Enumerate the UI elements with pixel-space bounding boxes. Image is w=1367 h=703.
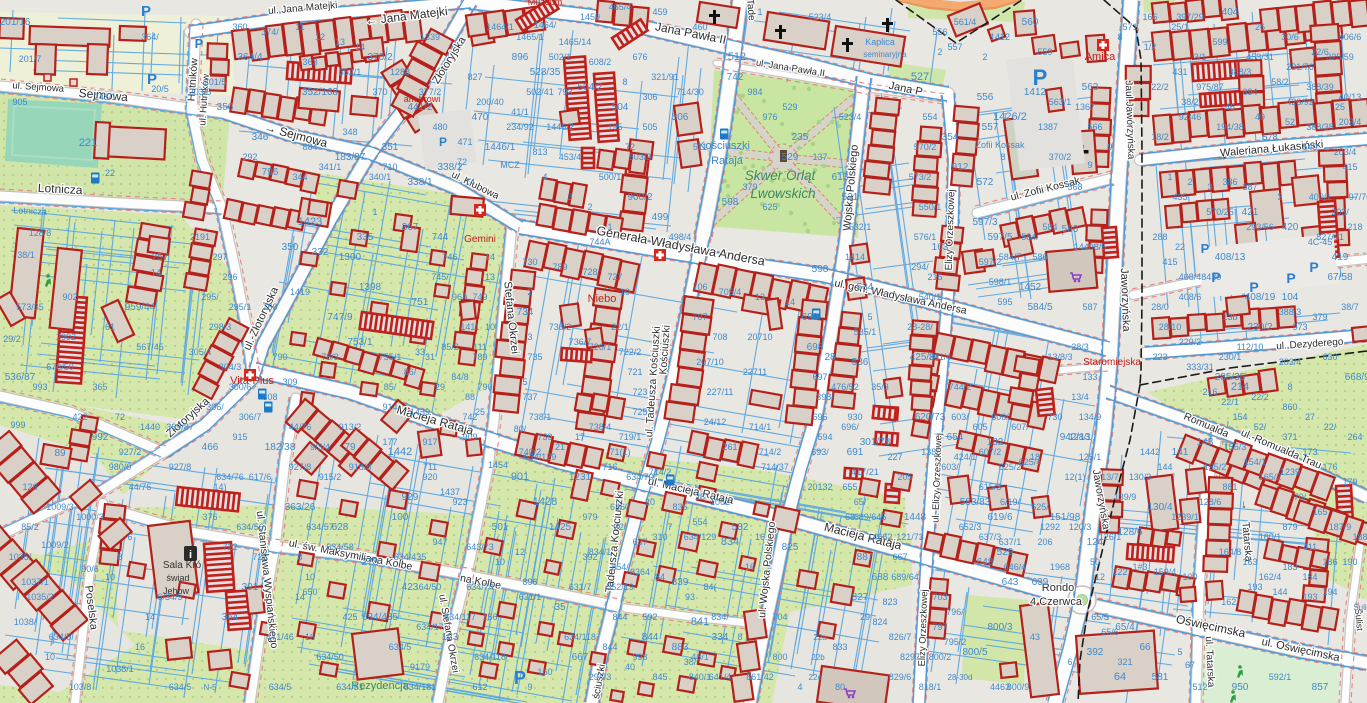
svg-text:248/1: 248/1 bbox=[94, 92, 117, 102]
svg-text:634/57: 634/57 bbox=[306, 522, 334, 532]
svg-text:431: 431 bbox=[1172, 67, 1187, 77]
svg-text:529: 529 bbox=[782, 102, 797, 112]
svg-text:207/10: 207/10 bbox=[696, 357, 724, 367]
svg-text:735: 735 bbox=[527, 352, 542, 362]
svg-text:201/7: 201/7 bbox=[19, 54, 42, 64]
svg-text:603/: 603/ bbox=[941, 462, 959, 472]
svg-text:4 Czerwca: 4 Czerwca bbox=[1030, 596, 1083, 608]
svg-text:556: 556 bbox=[932, 27, 947, 37]
svg-text:634/435: 634/435 bbox=[362, 612, 399, 623]
svg-text:112/10: 112/10 bbox=[1237, 342, 1264, 352]
svg-text:141: 141 bbox=[1172, 447, 1189, 458]
svg-text:823: 823 bbox=[882, 597, 897, 607]
svg-text:607/: 607/ bbox=[1011, 422, 1029, 432]
svg-text:915: 915 bbox=[232, 432, 247, 442]
svg-text:388/38: 388/38 bbox=[1306, 122, 1334, 132]
svg-text:122: 122 bbox=[1112, 567, 1127, 577]
svg-text:12: 12 bbox=[515, 547, 525, 557]
svg-text:1414: 1414 bbox=[845, 252, 865, 262]
svg-text:411: 411 bbox=[1303, 542, 1317, 552]
svg-text:151/98: 151/98 bbox=[1050, 512, 1081, 523]
svg-text:879: 879 bbox=[1282, 522, 1297, 532]
svg-text:P: P bbox=[195, 36, 204, 51]
svg-text:476/52: 476/52 bbox=[831, 382, 859, 392]
svg-text:844: 844 bbox=[612, 612, 627, 622]
svg-text:667: 667 bbox=[572, 652, 589, 663]
svg-text:634/56: 634/56 bbox=[236, 522, 264, 532]
svg-text:6360: 6360 bbox=[610, 502, 630, 512]
svg-text:523/4: 523/4 bbox=[839, 112, 862, 122]
svg-text:261: 261 bbox=[722, 442, 737, 452]
svg-text:221: 221 bbox=[79, 137, 97, 149]
svg-text:839: 839 bbox=[672, 577, 689, 588]
svg-text:630: 630 bbox=[1322, 352, 1337, 362]
svg-text:344: 344 bbox=[292, 172, 307, 182]
svg-text:179: 179 bbox=[1342, 477, 1357, 487]
svg-text:727: 727 bbox=[607, 272, 622, 282]
svg-text:P: P bbox=[514, 668, 526, 688]
svg-text:1448: 1448 bbox=[904, 512, 927, 523]
svg-text:896: 896 bbox=[522, 577, 537, 587]
svg-text:612: 612 bbox=[472, 682, 487, 692]
svg-text:90/6: 90/6 bbox=[81, 564, 99, 574]
svg-text:325/59: 325/59 bbox=[1326, 52, 1354, 62]
svg-text:857: 857 bbox=[1312, 682, 1329, 693]
svg-text:470: 470 bbox=[472, 112, 489, 123]
svg-text:13: 13 bbox=[335, 37, 345, 47]
svg-text:598: 598 bbox=[722, 197, 739, 208]
svg-text:364/: 364/ bbox=[141, 32, 159, 42]
svg-text:4: 4 bbox=[542, 172, 547, 182]
svg-text:419: 419 bbox=[1332, 252, 1349, 263]
svg-text:84(: 84( bbox=[703, 582, 716, 592]
svg-text:512: 512 bbox=[1192, 682, 1207, 692]
svg-text:800/5: 800/5 bbox=[962, 647, 987, 658]
svg-text:688: 688 bbox=[872, 572, 889, 583]
svg-text:294/: 294/ bbox=[911, 262, 929, 272]
svg-text:634/118: 634/118 bbox=[564, 632, 596, 642]
svg-text:529: 529 bbox=[782, 152, 799, 163]
svg-text:598/1: 598/1 bbox=[989, 277, 1012, 287]
svg-text:707: 707 bbox=[692, 312, 707, 322]
svg-text:918/8: 918/8 bbox=[349, 462, 372, 472]
svg-text:637/1: 637/1 bbox=[999, 537, 1022, 547]
svg-text:597/3: 597/3 bbox=[972, 217, 997, 228]
svg-text:14408/5: 14408/5 bbox=[1074, 242, 1107, 252]
svg-text:392: 392 bbox=[582, 552, 597, 562]
svg-text:597/5: 597/5 bbox=[987, 232, 1012, 243]
svg-text:942/13: 942/13 bbox=[1060, 432, 1091, 443]
svg-text:285/35: 285/35 bbox=[1215, 372, 1246, 383]
svg-text:471/46: 471/46 bbox=[266, 632, 294, 642]
svg-text:386: 386 bbox=[1222, 177, 1237, 187]
svg-text:459: 459 bbox=[652, 7, 667, 17]
svg-text:N-5: N-5 bbox=[204, 683, 217, 692]
svg-text:1464/1: 1464/1 bbox=[486, 22, 514, 32]
svg-text:404: 404 bbox=[1222, 7, 1239, 18]
svg-text:17: 17 bbox=[575, 432, 585, 442]
svg-text:826/7: 826/7 bbox=[889, 632, 912, 642]
svg-text:9: 9 bbox=[1107, 142, 1112, 152]
svg-text:571: 571 bbox=[1122, 22, 1137, 32]
svg-text:44/76: 44/76 bbox=[129, 482, 152, 492]
svg-text:650: 650 bbox=[302, 587, 317, 597]
svg-text:655: 655 bbox=[842, 482, 857, 492]
svg-text:834/: 834/ bbox=[711, 612, 729, 622]
svg-text:441/2: 441/2 bbox=[407, 102, 432, 113]
svg-text:61: 61 bbox=[105, 322, 115, 332]
svg-text:845: 845 bbox=[652, 672, 667, 682]
svg-text:927/8: 927/8 bbox=[289, 462, 312, 472]
svg-text:398/: 398/ bbox=[816, 392, 834, 402]
svg-text:844: 844 bbox=[602, 642, 617, 652]
svg-text:573/2: 573/2 bbox=[909, 172, 932, 182]
svg-text:1440: 1440 bbox=[140, 422, 160, 432]
svg-text:133: 133 bbox=[1082, 372, 1097, 382]
svg-text:8364: 8364 bbox=[630, 567, 650, 577]
svg-text:125/1: 125/1 bbox=[1079, 452, 1102, 462]
svg-text:364/4: 364/4 bbox=[237, 52, 262, 63]
svg-text:8: 8 bbox=[297, 552, 302, 562]
svg-text:999: 999 bbox=[10, 420, 25, 430]
svg-text:453/31: 453/31 bbox=[1246, 52, 1274, 62]
svg-text:711: 711 bbox=[423, 462, 437, 472]
svg-text:338/1: 338/1 bbox=[407, 177, 432, 188]
svg-text:64/50: 64/50 bbox=[419, 582, 442, 592]
svg-text:20: 20 bbox=[645, 497, 655, 507]
svg-text:351: 351 bbox=[382, 142, 399, 153]
svg-text:408/13: 408/13 bbox=[1215, 252, 1246, 263]
svg-text:14): 14) bbox=[213, 482, 226, 492]
svg-text:52/: 52/ bbox=[1254, 422, 1267, 432]
svg-text:502/1: 502/1 bbox=[549, 52, 572, 62]
svg-text:1442: 1442 bbox=[388, 446, 412, 458]
svg-text:697: 697 bbox=[812, 372, 827, 382]
svg-text:500/1: 500/1 bbox=[599, 172, 622, 182]
svg-text:426/92: 426/92 bbox=[1286, 97, 1314, 107]
svg-text:22a: 22a bbox=[813, 633, 827, 642]
svg-text:561/4: 561/4 bbox=[954, 17, 977, 27]
svg-text:584: 584 bbox=[1042, 222, 1057, 232]
svg-text:980/0: 980/0 bbox=[109, 462, 132, 472]
svg-text:536/87: 536/87 bbox=[5, 372, 36, 383]
svg-text:721: 721 bbox=[627, 367, 642, 377]
svg-text:503/3: 503/3 bbox=[629, 152, 652, 162]
svg-text:887: 887 bbox=[857, 552, 874, 563]
svg-text:92/46: 92/46 bbox=[1179, 112, 1202, 122]
svg-text:155/3: 155/3 bbox=[1224, 442, 1247, 452]
svg-text:1009/2: 1009/2 bbox=[41, 540, 69, 550]
svg-text:364: 364 bbox=[222, 612, 239, 623]
svg-text:668/99: 668/99 bbox=[1345, 372, 1367, 383]
svg-text:9179: 9179 bbox=[410, 662, 430, 672]
svg-text:608/2: 608/2 bbox=[589, 57, 612, 67]
svg-text:9: 9 bbox=[527, 682, 532, 692]
svg-text:693/: 693/ bbox=[811, 447, 829, 457]
svg-text:38/2: 38/2 bbox=[1181, 97, 1199, 107]
svg-text:797: 797 bbox=[932, 622, 947, 632]
svg-text:504: 504 bbox=[612, 102, 629, 113]
svg-text:130/4: 130/4 bbox=[1147, 502, 1172, 513]
svg-text:566: 566 bbox=[1087, 122, 1102, 132]
svg-text:417/21: 417/21 bbox=[851, 467, 879, 477]
svg-text:2: 2 bbox=[587, 202, 592, 212]
svg-text:360: 360 bbox=[232, 22, 247, 32]
svg-text:38/7: 38/7 bbox=[1341, 302, 1359, 312]
svg-text:5: 5 bbox=[1177, 647, 1182, 657]
svg-text:379: 379 bbox=[1312, 312, 1327, 322]
svg-text:72: 72 bbox=[457, 157, 467, 167]
svg-text:13: 13 bbox=[755, 292, 765, 302]
svg-text:154: 154 bbox=[1232, 412, 1247, 422]
svg-text:529: 529 bbox=[997, 547, 1014, 558]
svg-text:706: 706 bbox=[692, 282, 707, 292]
svg-text:466: 466 bbox=[202, 442, 219, 453]
svg-text:35: 35 bbox=[554, 602, 566, 613]
svg-text:300/6: 300/6 bbox=[229, 382, 252, 392]
svg-text:415: 415 bbox=[1342, 162, 1357, 172]
svg-text:21: 21 bbox=[555, 442, 565, 452]
svg-text:13/8/3: 13/8/3 bbox=[1047, 352, 1072, 362]
svg-text:13: 13 bbox=[485, 272, 495, 282]
svg-text:8: 8 bbox=[1287, 382, 1292, 392]
svg-text:173: 173 bbox=[1302, 447, 1317, 457]
svg-text:Sala Kró: Sala Kró bbox=[163, 560, 202, 571]
svg-text:1465/14: 1465/14 bbox=[559, 37, 592, 47]
svg-text:20132: 20132 bbox=[807, 482, 832, 492]
svg-text:947: 947 bbox=[432, 537, 447, 547]
svg-text:973: 973 bbox=[1292, 322, 1307, 332]
svg-text:5: 5 bbox=[867, 312, 872, 322]
svg-text:134/9: 134/9 bbox=[1079, 412, 1102, 422]
svg-text:691: 691 bbox=[847, 447, 864, 458]
svg-text:10: 10 bbox=[620, 287, 630, 297]
svg-text:203/4: 203/4 bbox=[1279, 357, 1302, 367]
svg-text:84/8: 84/8 bbox=[451, 372, 469, 382]
svg-text:162/: 162/ bbox=[1221, 597, 1239, 607]
svg-text:738/1: 738/1 bbox=[529, 412, 552, 422]
svg-text:44/76: 44/76 bbox=[289, 422, 312, 432]
svg-text:975/87: 975/87 bbox=[1196, 82, 1224, 92]
svg-text:Muzeum: Muzeum bbox=[528, 0, 563, 7]
svg-text:696/: 696/ bbox=[841, 422, 859, 432]
svg-text:74: 74 bbox=[465, 177, 475, 187]
svg-text:835: 835 bbox=[672, 502, 687, 512]
svg-text:800/3: 800/3 bbox=[987, 622, 1012, 633]
svg-text:203/5: 203/5 bbox=[189, 87, 212, 97]
svg-text:333/31: 333/31 bbox=[1186, 362, 1214, 372]
svg-text:528/35: 528/35 bbox=[530, 67, 561, 78]
svg-text:203/: 203/ bbox=[1331, 207, 1349, 217]
svg-text:264: 264 bbox=[1347, 432, 1362, 442]
svg-text:227: 227 bbox=[887, 452, 902, 462]
svg-text:499: 499 bbox=[652, 212, 669, 223]
svg-text:901: 901 bbox=[511, 471, 529, 483]
svg-text:698: 698 bbox=[807, 342, 824, 353]
svg-text:165: 165 bbox=[1312, 507, 1327, 517]
svg-text:1425: 1425 bbox=[549, 522, 572, 533]
svg-text:29/73: 29/73 bbox=[589, 672, 612, 682]
svg-text:25: 25 bbox=[475, 407, 485, 417]
svg-text:532: 532 bbox=[732, 522, 749, 533]
svg-text:634/181: 634/181 bbox=[404, 682, 437, 692]
svg-text:435: 435 bbox=[1172, 192, 1187, 202]
svg-text:Amica: Amica bbox=[1085, 51, 1116, 63]
svg-text:704: 704 bbox=[772, 612, 787, 622]
svg-text:72: 72 bbox=[625, 142, 635, 152]
svg-text:67: 67 bbox=[1185, 660, 1195, 670]
svg-text:8: 8 bbox=[1000, 152, 1005, 162]
svg-text:506: 506 bbox=[672, 112, 689, 123]
svg-text:138/: 138/ bbox=[921, 447, 939, 457]
svg-text:790: 790 bbox=[477, 382, 492, 392]
svg-text:3: 3 bbox=[1277, 192, 1282, 202]
svg-text:552/19: 552/19 bbox=[606, 582, 634, 592]
svg-text:22c: 22c bbox=[809, 673, 822, 682]
svg-text:334: 334 bbox=[712, 632, 729, 643]
svg-text:646/4: 646/4 bbox=[1004, 562, 1027, 572]
svg-text:1288: 1288 bbox=[390, 67, 410, 77]
svg-text:465/4: 465/4 bbox=[609, 2, 632, 12]
svg-text:16: 16 bbox=[755, 532, 765, 542]
svg-text:998: 998 bbox=[632, 652, 647, 662]
svg-text:1446/1: 1446/1 bbox=[485, 142, 516, 153]
svg-text:16: 16 bbox=[305, 632, 315, 642]
svg-text:200/40: 200/40 bbox=[476, 97, 504, 107]
svg-text:760: 760 bbox=[262, 302, 277, 312]
svg-text:744/2: 744/2 bbox=[949, 382, 972, 392]
svg-text:915/2: 915/2 bbox=[319, 472, 342, 482]
svg-text:583/83: 583/83 bbox=[960, 497, 991, 508]
svg-text:813: 813 bbox=[532, 147, 547, 157]
svg-text:453/4: 453/4 bbox=[559, 152, 582, 162]
svg-text:605: 605 bbox=[972, 422, 987, 432]
svg-text:795/2: 795/2 bbox=[944, 637, 967, 647]
svg-text:730: 730 bbox=[522, 257, 537, 267]
svg-text:18/2: 18/2 bbox=[1151, 132, 1169, 142]
svg-text:634/5: 634/5 bbox=[49, 632, 72, 642]
svg-text:85/2: 85/2 bbox=[441, 342, 459, 352]
svg-text:634/51: 634/51 bbox=[336, 682, 364, 692]
svg-text:502/41: 502/41 bbox=[526, 87, 554, 97]
svg-text:11: 11 bbox=[295, 22, 304, 32]
svg-text:22/1: 22/1 bbox=[1221, 397, 1239, 407]
svg-text:723: 723 bbox=[252, 552, 267, 562]
svg-text:1411: 1411 bbox=[460, 322, 479, 332]
svg-text:734: 734 bbox=[517, 307, 534, 318]
svg-text:531: 531 bbox=[842, 192, 859, 203]
svg-text:1423: 1423 bbox=[298, 216, 322, 228]
svg-text:556: 556 bbox=[977, 92, 994, 103]
svg-text:29/2: 29/2 bbox=[3, 334, 21, 344]
svg-text:8: 8 bbox=[117, 552, 122, 562]
svg-text:634/5: 634/5 bbox=[269, 682, 292, 692]
svg-text:10: 10 bbox=[45, 652, 55, 662]
svg-text:722: 722 bbox=[222, 542, 237, 552]
svg-text:8297: 8297 bbox=[900, 652, 920, 662]
svg-text:406/6: 406/6 bbox=[1339, 32, 1362, 42]
svg-text:723: 723 bbox=[632, 387, 647, 397]
svg-text:929: 929 bbox=[402, 492, 419, 503]
svg-text:576/1: 576/1 bbox=[914, 232, 937, 242]
svg-text:1452: 1452 bbox=[1019, 282, 1042, 293]
svg-text:950: 950 bbox=[1232, 682, 1249, 693]
svg-text:374/: 374/ bbox=[261, 27, 279, 37]
svg-text:861/42: 861/42 bbox=[746, 672, 774, 682]
svg-text:25: 25 bbox=[1335, 102, 1345, 112]
svg-text:719/1: 719/1 bbox=[619, 432, 642, 442]
svg-text:554: 554 bbox=[692, 517, 707, 527]
svg-text:592: 592 bbox=[642, 612, 657, 622]
svg-text:2191: 2191 bbox=[190, 232, 210, 242]
svg-text:10: 10 bbox=[305, 572, 315, 582]
svg-text:65/: 65/ bbox=[854, 497, 867, 507]
svg-text:Rataja: Rataja bbox=[711, 155, 744, 167]
svg-text:120/3: 120/3 bbox=[1069, 522, 1092, 532]
svg-text:201/5: 201/5 bbox=[204, 77, 227, 87]
svg-text:193: 193 bbox=[1302, 592, 1317, 602]
svg-text:535/1: 535/1 bbox=[854, 327, 877, 337]
svg-text:586: 586 bbox=[1032, 252, 1047, 262]
svg-text:637: 637 bbox=[632, 537, 647, 547]
svg-text:89: 89 bbox=[54, 448, 66, 459]
svg-text:625/: 625/ bbox=[1031, 502, 1049, 512]
svg-text:Tade: Tade bbox=[744, 0, 757, 21]
svg-text:306/7: 306/7 bbox=[239, 412, 262, 422]
svg-text:Lotnicza: Lotnicza bbox=[13, 205, 47, 217]
svg-text:14: 14 bbox=[355, 42, 365, 52]
svg-text:Niebo: Niebo bbox=[588, 293, 617, 305]
svg-text:346: 346 bbox=[252, 132, 269, 143]
svg-text:139/9: 139/9 bbox=[1114, 492, 1137, 502]
svg-text:144: 144 bbox=[1272, 587, 1287, 597]
svg-text:619/6: 619/6 bbox=[987, 512, 1012, 523]
svg-text:747/9: 747/9 bbox=[327, 312, 352, 323]
svg-text:568: 568 bbox=[1067, 182, 1082, 192]
svg-text:900/2: 900/2 bbox=[627, 192, 652, 203]
svg-text:725: 725 bbox=[632, 407, 647, 417]
svg-text:800/9: 800/9 bbox=[1007, 682, 1030, 692]
svg-text:Staromiejska: Staromiejska bbox=[1083, 357, 1141, 368]
svg-text:183: 183 bbox=[1282, 562, 1297, 572]
svg-text:905: 905 bbox=[12, 97, 27, 107]
svg-text:504/2: 504/2 bbox=[577, 82, 602, 93]
svg-text:16: 16 bbox=[135, 642, 145, 652]
svg-text:10: 10 bbox=[485, 322, 495, 332]
svg-text:85/2: 85/2 bbox=[21, 522, 39, 532]
svg-text:749: 749 bbox=[472, 292, 487, 302]
svg-text:745/: 745/ bbox=[431, 272, 449, 282]
svg-text:689/645: 689/645 bbox=[854, 512, 887, 522]
svg-text:388/3: 388/3 bbox=[1279, 307, 1302, 317]
svg-text:Lotnicza: Lotnicza bbox=[38, 181, 84, 197]
svg-text:1428: 1428 bbox=[533, 496, 557, 508]
svg-text:231/76: 231/76 bbox=[1286, 62, 1314, 72]
svg-text:288: 288 bbox=[1152, 232, 1167, 242]
svg-text:1412: 1412 bbox=[1024, 87, 1047, 98]
svg-text:705/4: 705/4 bbox=[719, 287, 742, 297]
svg-text:215: 215 bbox=[927, 272, 942, 282]
svg-text:471: 471 bbox=[457, 137, 472, 147]
svg-text:→: → bbox=[1215, 149, 1228, 164]
svg-text:1454: 1454 bbox=[488, 460, 508, 470]
svg-text:58/2: 58/2 bbox=[1271, 77, 1289, 87]
svg-text:144: 144 bbox=[1157, 462, 1172, 472]
svg-text:28: 28 bbox=[824, 352, 836, 363]
svg-text:628: 628 bbox=[332, 522, 349, 533]
svg-text:3: 3 bbox=[1207, 182, 1212, 192]
svg-text:88: 88 bbox=[465, 392, 475, 402]
